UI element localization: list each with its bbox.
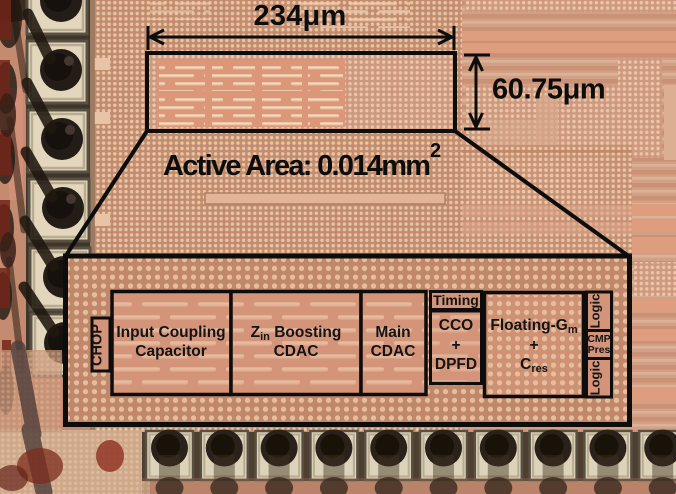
svg-text:Input Coupling: Input Coupling	[116, 324, 225, 341]
svg-text:Active Area: 0.014mm: Active Area: 0.014mm	[163, 150, 429, 182]
svg-text:Capacitor: Capacitor	[135, 343, 207, 360]
svg-text:Floating-Gm: Floating-Gm	[490, 317, 578, 336]
svg-text:Logic: Logic	[588, 361, 603, 396]
svg-text:+: +	[451, 337, 460, 354]
svg-text:CHOP: CHOP	[90, 324, 106, 366]
svg-text:CDAC: CDAC	[371, 343, 416, 360]
svg-text:CCO: CCO	[439, 317, 473, 334]
svg-text:2: 2	[430, 140, 441, 162]
svg-text:Pres: Pres	[588, 344, 611, 356]
svg-text:234μm: 234μm	[254, 0, 347, 32]
svg-text:DPFD: DPFD	[435, 356, 477, 373]
svg-text:Logic: Logic	[588, 294, 603, 329]
svg-text:Main: Main	[375, 324, 410, 341]
svg-text:Timing: Timing	[433, 292, 479, 308]
svg-text:+: +	[529, 337, 538, 354]
svg-text:CDAC: CDAC	[274, 343, 319, 360]
svg-text:60.75μm: 60.75μm	[492, 74, 605, 106]
